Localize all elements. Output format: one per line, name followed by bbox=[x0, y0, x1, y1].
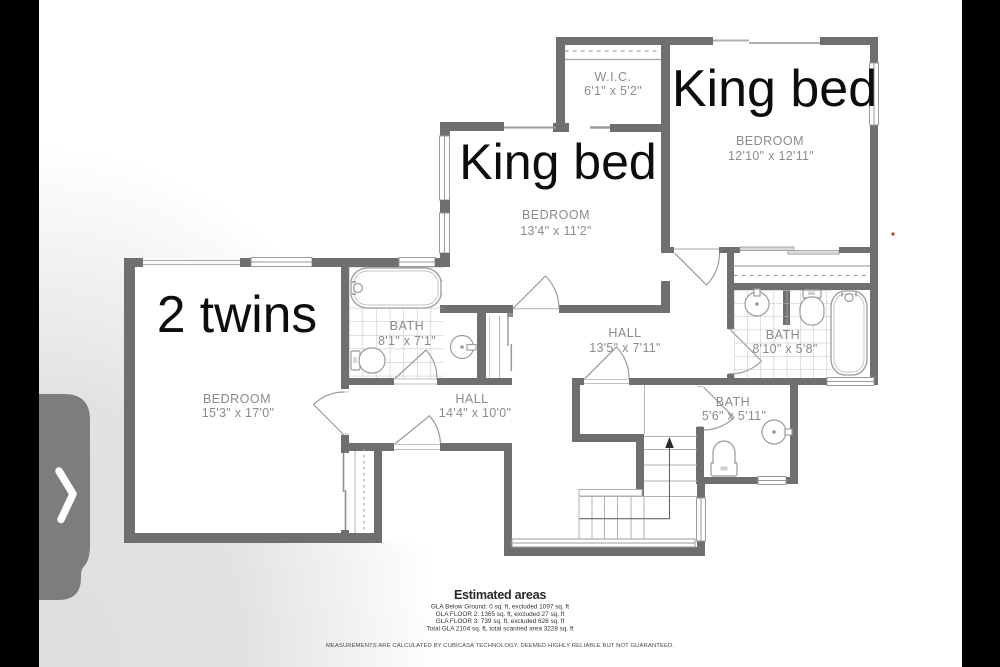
svg-text:MEASUREMENTS ARE CALCULATED BY: MEASUREMENTS ARE CALCULATED BY CUBICASA … bbox=[326, 643, 675, 649]
svg-text:W.I.C.: W.I.C. bbox=[594, 70, 631, 84]
svg-text:King bed: King bed bbox=[672, 60, 877, 118]
svg-text:GLA Below Ground: 0 sq. ft, ex: GLA Below Ground: 0 sq. ft, excluded 109… bbox=[431, 604, 569, 611]
svg-text:BEDROOM: BEDROOM bbox=[522, 208, 590, 222]
svg-text:13'4" x 11'2": 13'4" x 11'2" bbox=[520, 224, 592, 238]
svg-text:Total GLA 2104 sq. ft, total s: Total GLA 2104 sq. ft, total scanned are… bbox=[426, 625, 573, 632]
svg-text:BEDROOM: BEDROOM bbox=[736, 134, 804, 148]
svg-text:Estimated areas: Estimated areas bbox=[454, 588, 546, 602]
svg-text:15'3" x 17'0": 15'3" x 17'0" bbox=[202, 406, 274, 420]
svg-text:8'10" x 5'8": 8'10" x 5'8" bbox=[752, 342, 817, 356]
svg-text:BATH: BATH bbox=[390, 319, 424, 333]
svg-text:GLA FLOOR 2: 1365 sq. ft, excl: GLA FLOOR 2: 1365 sq. ft, excluded 27 sq… bbox=[436, 611, 565, 618]
svg-text:HALL: HALL bbox=[455, 392, 488, 406]
svg-text:BATH: BATH bbox=[716, 395, 750, 409]
svg-text:GLA FLOOR 3: 739 sq. ft, exclu: GLA FLOOR 3: 739 sq. ft, excluded 626 sq… bbox=[436, 618, 565, 625]
svg-text:5'6" x 5'11": 5'6" x 5'11" bbox=[702, 409, 766, 423]
svg-text:12'10" x 12'11": 12'10" x 12'11" bbox=[728, 149, 814, 163]
svg-text:2 twins: 2 twins bbox=[157, 285, 317, 343]
svg-text:13'5" x 7'11": 13'5" x 7'11" bbox=[589, 341, 661, 355]
svg-text:HALL: HALL bbox=[608, 326, 641, 340]
svg-text:6'1" x 5'2": 6'1" x 5'2" bbox=[584, 84, 642, 98]
svg-text:14'4" x 10'0": 14'4" x 10'0" bbox=[439, 406, 511, 420]
svg-text:8'1" x 7'1": 8'1" x 7'1" bbox=[378, 334, 436, 348]
svg-text:BATH: BATH bbox=[766, 328, 800, 342]
svg-text:BEDROOM: BEDROOM bbox=[203, 392, 271, 406]
svg-text:King bed: King bed bbox=[459, 134, 656, 190]
